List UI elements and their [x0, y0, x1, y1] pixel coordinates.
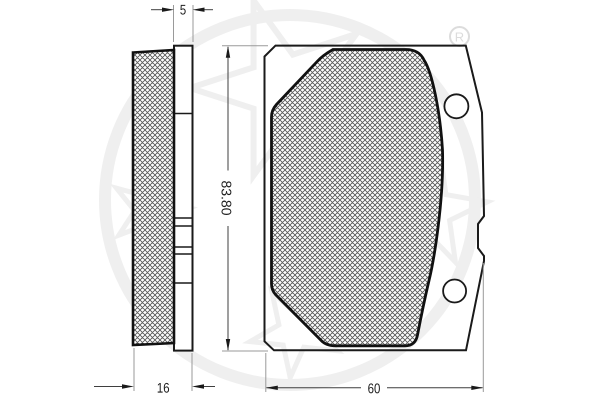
svg-text:R: R	[455, 30, 464, 45]
